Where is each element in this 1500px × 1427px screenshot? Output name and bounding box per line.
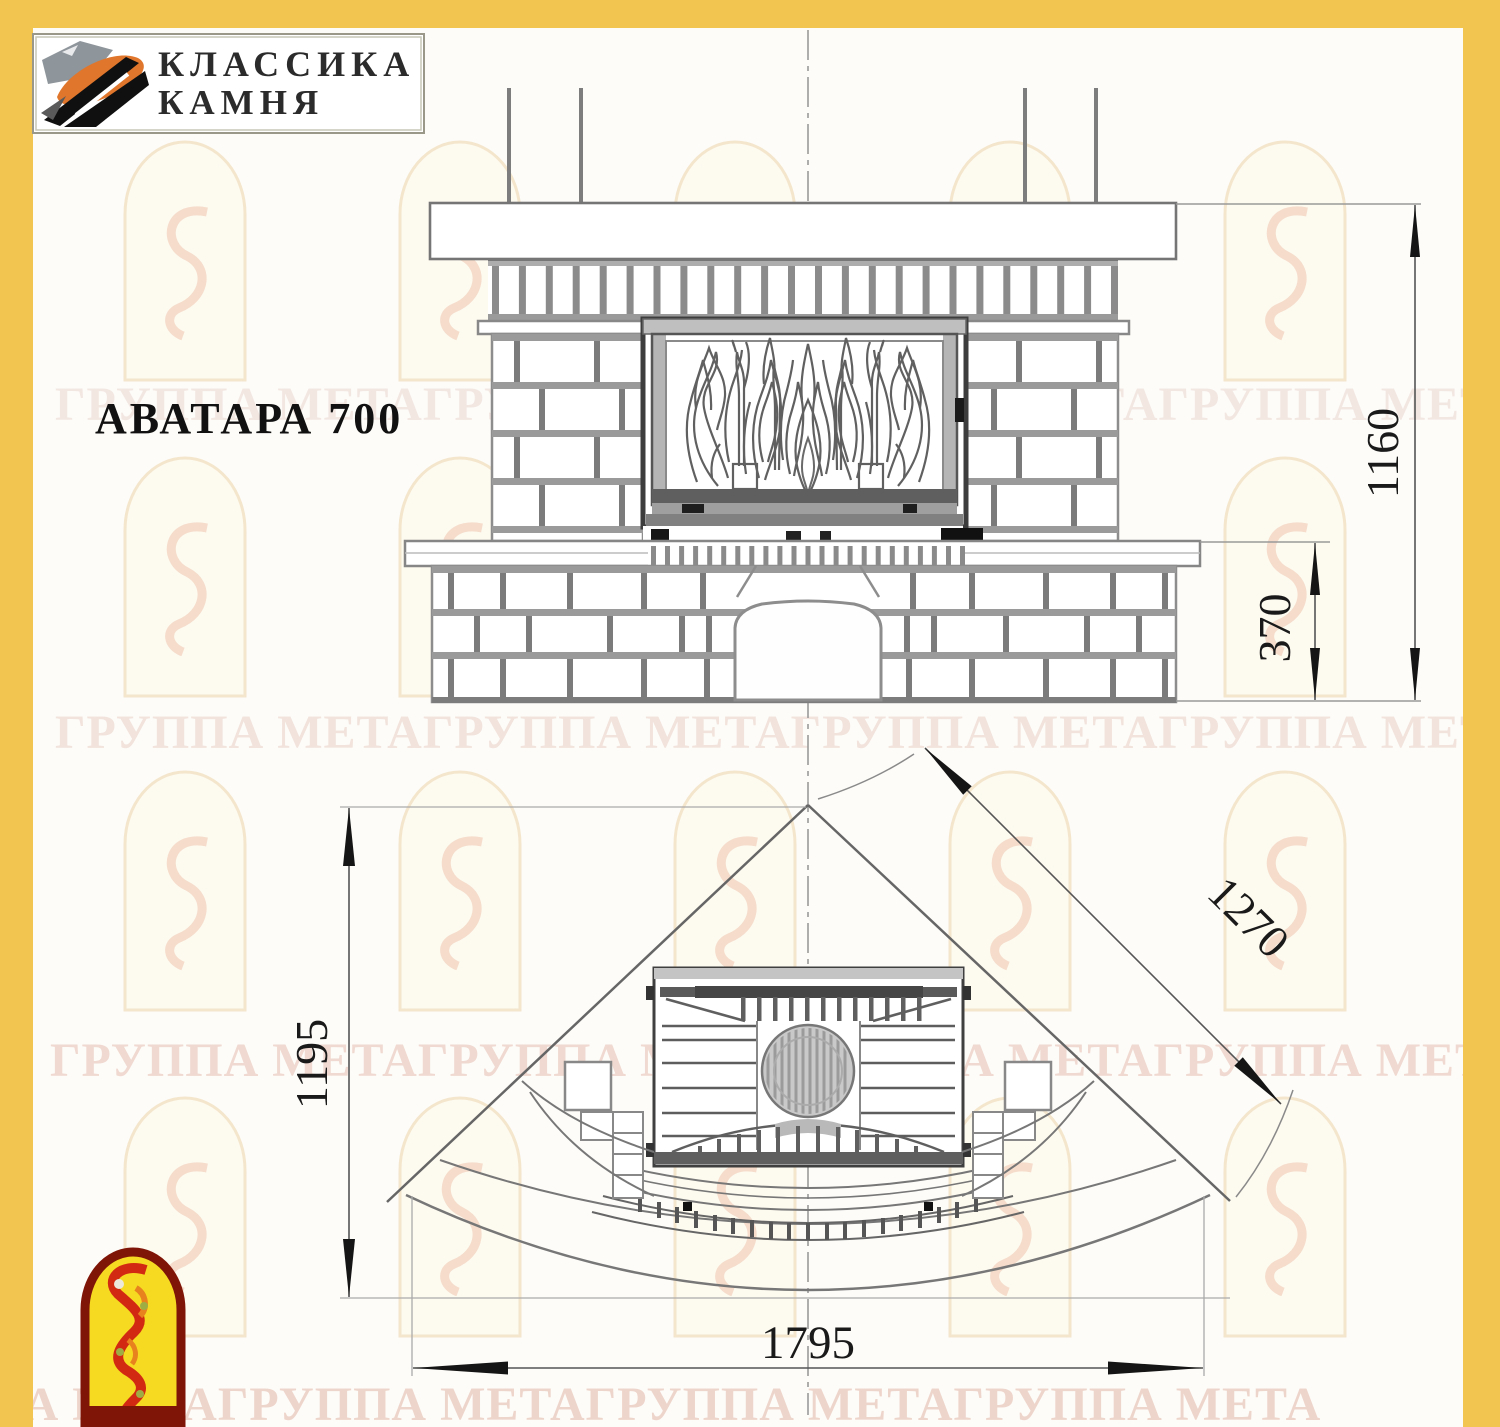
- svg-text:1795: 1795: [761, 1317, 855, 1369]
- svg-text:АВАТАРА 700: АВАТАРА 700: [95, 394, 403, 443]
- svg-text:ГРУППА МЕТАГРУППА МЕТАГРУППА М: ГРУППА МЕТАГРУППА МЕТАГРУППА МЕТАГРУППА …: [55, 706, 1500, 759]
- svg-text:1195: 1195: [286, 1019, 337, 1109]
- svg-text:КЛАССИКА: КЛАССИКА: [158, 44, 415, 84]
- svg-text:КАМНЯ: КАМНЯ: [158, 83, 324, 122]
- svg-text:ГРУППА МЕТАГРУППА МЕТАГРУППА М: ГРУППА МЕТАГРУППА МЕТАГРУППА МЕТАГРУППА …: [0, 1378, 1321, 1427]
- svg-text:370: 370: [1249, 594, 1300, 663]
- svg-text:1160: 1160: [1357, 408, 1408, 498]
